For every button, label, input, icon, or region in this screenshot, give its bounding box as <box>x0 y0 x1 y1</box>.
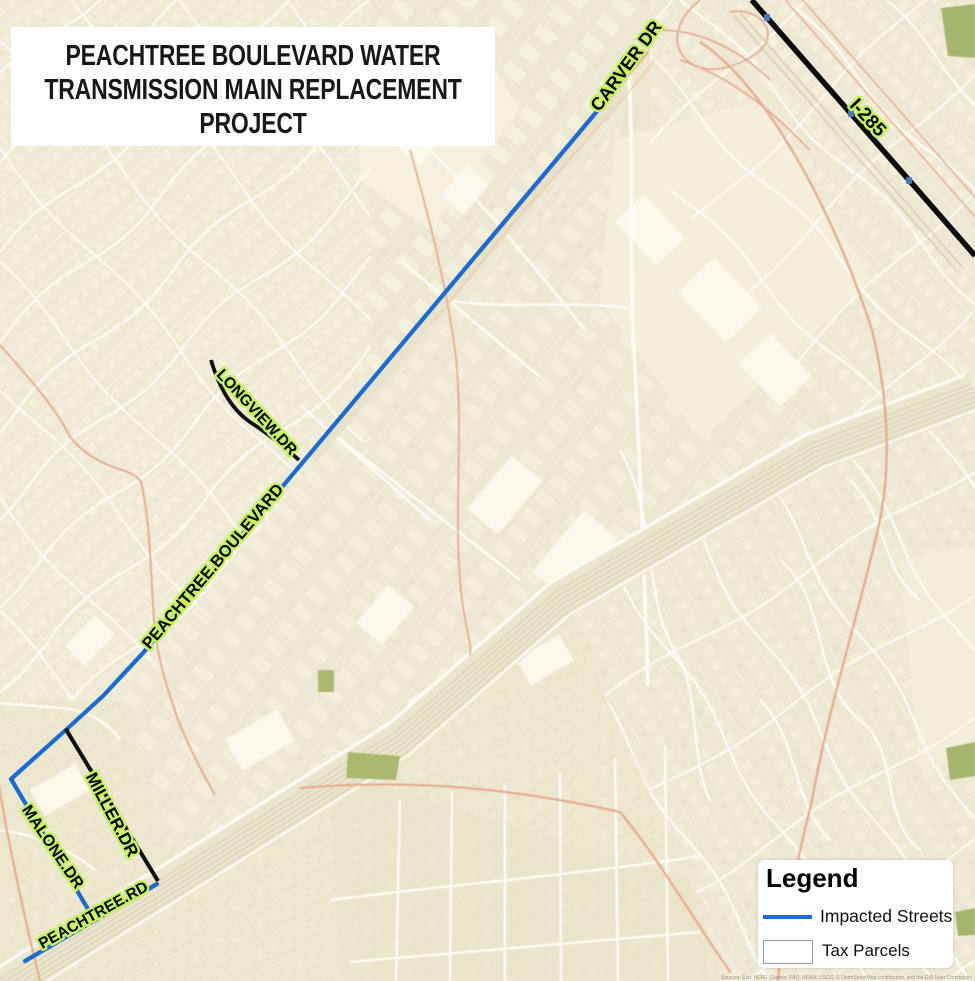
svg-text:Sources: Esri, HERE, Garmin, F: Sources: Esri, HERE, Garmin, FAO, NOAA, … <box>721 974 972 981</box>
